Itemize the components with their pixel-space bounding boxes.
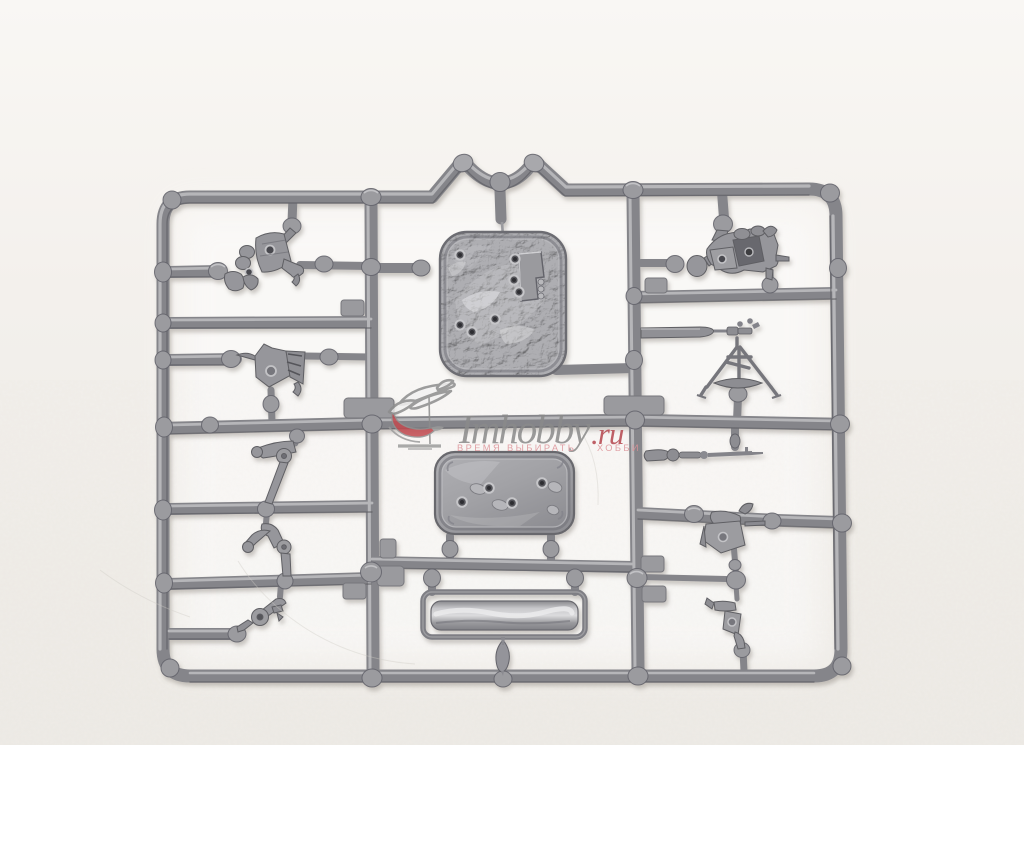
svg-text:ВРЕМЯ ВЫБИРАТЬ: ВРЕМЯ ВЫБИРАТЬ — [457, 443, 576, 453]
svg-text:ХОББИ: ХОББИ — [597, 443, 641, 453]
